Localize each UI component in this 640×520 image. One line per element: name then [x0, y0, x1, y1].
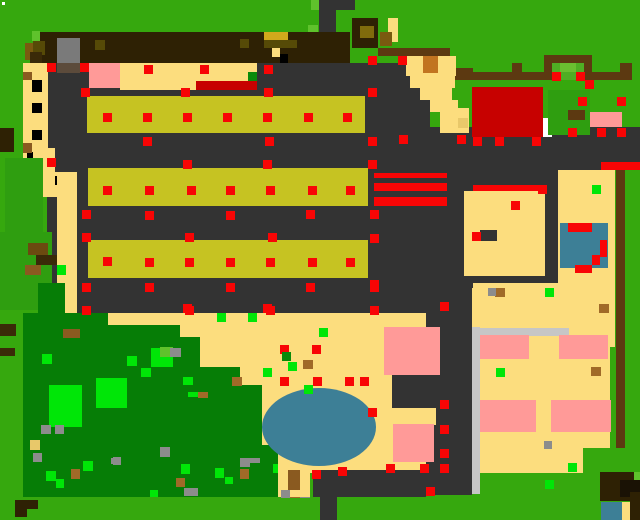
- east-pond: [600, 257, 608, 267]
- item-red: [103, 257, 112, 266]
- item-red: [312, 345, 321, 354]
- item-red: [145, 258, 154, 267]
- branch: [36, 255, 57, 265]
- cliff-wood: [23, 72, 32, 80]
- east-fence-line: [616, 170, 625, 448]
- pink-bed: [551, 400, 611, 432]
- red-carpet: [196, 81, 257, 90]
- item-red: [568, 128, 577, 137]
- leaf-patch: [57, 265, 66, 275]
- item-red: [370, 280, 379, 289]
- pen-bush-light: [560, 63, 576, 72]
- item-red: [313, 377, 322, 386]
- item-red: [473, 137, 482, 146]
- tree-deco: [360, 26, 374, 38]
- item-red: [183, 160, 192, 169]
- item-red: [440, 464, 449, 473]
- log: [71, 469, 80, 479]
- item-green: [288, 362, 297, 371]
- item-red: [143, 137, 152, 146]
- tree-trunk: [288, 470, 300, 490]
- log-west-edge: [0, 324, 16, 336]
- item-red: [399, 135, 408, 144]
- fence-rail: [378, 48, 450, 56]
- item-red: [370, 306, 379, 315]
- item-red: [47, 158, 56, 167]
- item-red: [265, 137, 274, 146]
- item-red: [103, 113, 112, 122]
- light-grass: [308, 25, 318, 32]
- item-green: [545, 480, 554, 489]
- striped-shed-stripe: [374, 183, 447, 191]
- item-red: [263, 113, 272, 122]
- log: [198, 392, 208, 398]
- item-red: [82, 283, 91, 292]
- item-red: [576, 72, 585, 81]
- item-red: [345, 377, 354, 386]
- lime-patch: [183, 377, 193, 385]
- item-red: [226, 258, 235, 267]
- lime-clearing: [49, 385, 82, 427]
- pink-bed: [559, 335, 608, 359]
- item-red: [532, 137, 541, 146]
- sand-spot: [30, 440, 40, 450]
- dark-plot: [392, 375, 440, 408]
- item-red: [226, 186, 235, 195]
- cliff-post: [32, 130, 42, 140]
- stone: [113, 457, 121, 465]
- log: [176, 478, 185, 487]
- lime-patch: [127, 356, 137, 366]
- south-log-l: [15, 509, 27, 517]
- item-red: [223, 113, 232, 122]
- item-green-dark: [282, 352, 291, 361]
- item-red: [338, 467, 347, 476]
- item-red: [266, 186, 275, 195]
- item-red: [103, 186, 112, 195]
- fence-rail: [455, 72, 548, 80]
- corner-hut: [630, 492, 640, 520]
- item-red: [368, 408, 377, 417]
- sand-slope: [430, 100, 458, 112]
- item-red: [145, 211, 154, 220]
- light-grass: [32, 31, 40, 41]
- sand-sliver: [472, 288, 480, 327]
- item-red: [264, 65, 273, 74]
- fence-post: [512, 63, 522, 72]
- item-red: [346, 258, 355, 267]
- lime-patch: [46, 471, 56, 481]
- item-red: [183, 304, 192, 313]
- item-red: [226, 283, 235, 292]
- gray-path-vertical: [472, 327, 480, 494]
- item-red: [266, 258, 275, 267]
- stone: [281, 490, 290, 498]
- item-red: [511, 201, 520, 210]
- farmhouse-wall: [40, 32, 350, 64]
- item-red: [306, 210, 315, 219]
- item-red: [370, 234, 379, 243]
- farmhouse-door: [57, 38, 80, 64]
- sand-slope: [410, 76, 455, 88]
- lime-patch: [42, 354, 52, 364]
- cliff-wood: [23, 143, 32, 153]
- item-red: [578, 97, 587, 106]
- item-red: [308, 186, 317, 195]
- wall-deco: [264, 40, 297, 48]
- item-green: [568, 463, 577, 472]
- item-red: [47, 63, 56, 72]
- item-green-dark: [248, 72, 257, 81]
- log: [568, 110, 585, 120]
- item-red: [346, 186, 355, 195]
- item-red: [312, 470, 321, 479]
- pond-ring: [592, 255, 600, 265]
- south-log-l: [15, 500, 38, 509]
- stone: [41, 425, 51, 434]
- stone: [33, 453, 42, 462]
- item-red: [457, 135, 466, 144]
- item-green: [592, 185, 601, 194]
- item-red: [200, 65, 209, 74]
- farmhouse-wall: [336, 32, 350, 64]
- item-red: [81, 88, 90, 97]
- light-grass: [634, 472, 640, 480]
- pond-ring: [568, 223, 592, 232]
- tree-canopy-west: [5, 158, 43, 235]
- item-red: [145, 186, 154, 195]
- lime-clearing: [96, 378, 127, 408]
- item-red: [263, 160, 272, 169]
- item-red: [368, 88, 377, 97]
- forest-southwest: [240, 385, 262, 497]
- pond-ring: [600, 240, 607, 257]
- pond-ring: [575, 265, 592, 273]
- item-red: [263, 304, 272, 313]
- item-wood: [495, 288, 505, 297]
- item-stone: [544, 441, 552, 449]
- item-red: [426, 487, 435, 496]
- item-red: [268, 233, 277, 242]
- item-red: [368, 160, 377, 169]
- item-wood: [591, 367, 601, 376]
- pen-fence: [544, 55, 592, 63]
- lime-patch: [150, 490, 158, 497]
- wall-gold-trim: [264, 32, 288, 40]
- item-red: [398, 56, 407, 65]
- item-red: [264, 88, 273, 97]
- item-green: [263, 368, 272, 377]
- fence-corner: [620, 63, 632, 80]
- lime-patch: [56, 479, 64, 488]
- item-red: [370, 210, 379, 219]
- stone: [184, 488, 198, 496]
- pink-patch: [590, 112, 622, 127]
- log: [232, 377, 242, 386]
- striped-shed-stripe: [374, 197, 447, 206]
- item-green: [248, 313, 257, 322]
- item-red: [386, 464, 395, 473]
- item-red: [181, 88, 190, 97]
- item-red: [538, 185, 547, 194]
- item-red: [440, 425, 449, 434]
- lime-patch: [225, 477, 233, 484]
- item-stone: [488, 288, 496, 296]
- cabin-furniture: [480, 230, 497, 241]
- item-wood: [303, 360, 313, 369]
- item-red: [82, 233, 91, 242]
- pink-bed: [384, 327, 440, 375]
- west-edge-notch: [0, 128, 14, 152]
- south-road-band: [313, 470, 426, 497]
- item-green: [304, 385, 313, 394]
- item-red: [80, 63, 89, 72]
- item-red: [597, 128, 606, 137]
- wall-window: [272, 48, 280, 57]
- branch: [28, 243, 48, 255]
- item-red: [183, 113, 192, 122]
- item-red: [420, 464, 429, 473]
- stone: [55, 425, 64, 434]
- stone: [250, 458, 260, 463]
- forest-edge: [38, 283, 65, 313]
- item-red: [82, 210, 91, 219]
- item-red: [304, 113, 313, 122]
- south-road-exit: [320, 497, 337, 520]
- item-red: [343, 113, 352, 122]
- item-red: [143, 113, 152, 122]
- pink-bed: [393, 424, 434, 462]
- striped-shed-stripe: [374, 173, 447, 178]
- stone: [170, 348, 181, 357]
- item-red: [617, 128, 626, 137]
- item-red: [495, 137, 504, 146]
- lime-patch: [181, 464, 190, 474]
- item-red: [552, 72, 561, 81]
- branch: [25, 265, 41, 275]
- item-red: [440, 449, 449, 458]
- striped-shed-stripe: [473, 185, 544, 191]
- item-red: [185, 258, 194, 267]
- east-red-line: [601, 162, 640, 170]
- farm-map[interactable]: [0, 0, 640, 520]
- wall-deco: [95, 40, 105, 50]
- item-red: [226, 211, 235, 220]
- log: [63, 329, 80, 338]
- item-red: [82, 306, 91, 315]
- item-red: [185, 233, 194, 242]
- stone: [160, 447, 170, 457]
- stone: [240, 458, 250, 467]
- sand-spot: [458, 118, 468, 128]
- pink-bed: [480, 335, 529, 359]
- doormat: [57, 63, 80, 73]
- item-red: [368, 137, 377, 146]
- lime-patch: [141, 368, 151, 377]
- tree-trunk: [30, 52, 42, 63]
- item-red: [440, 302, 449, 311]
- item-red: [280, 377, 289, 386]
- lime-patch: [188, 392, 198, 397]
- item-red: [368, 56, 377, 65]
- corner-pond: [601, 502, 622, 520]
- item-green: [496, 368, 505, 377]
- cliff-post: [32, 103, 42, 113]
- cliff-post: [32, 80, 42, 92]
- item-green: [319, 328, 328, 337]
- item-green: [217, 313, 226, 322]
- item-green: [545, 288, 554, 297]
- road-top: [336, 0, 355, 10]
- lime-patch: [215, 468, 224, 478]
- item-red: [585, 80, 594, 89]
- item-red: [187, 186, 196, 195]
- lime-patch: [83, 461, 93, 471]
- log-west-edge: [0, 348, 15, 356]
- white-dot: [2, 2, 5, 5]
- item-red: [306, 283, 315, 292]
- pink-bed: [480, 400, 536, 432]
- item-wood: [599, 304, 609, 313]
- item-red: [440, 400, 449, 409]
- item-red: [145, 283, 154, 292]
- light-grass: [311, 0, 319, 10]
- sand-sliver: [622, 502, 630, 520]
- item-red: [144, 65, 153, 74]
- item-red: [472, 232, 481, 241]
- red-barn: [472, 87, 543, 137]
- sand-slope: [420, 88, 452, 100]
- item-red: [308, 258, 317, 267]
- wall-deco: [240, 39, 249, 48]
- log: [240, 469, 249, 479]
- item-red: [360, 377, 369, 386]
- item-red: [617, 97, 626, 106]
- tree-trunk: [380, 32, 392, 46]
- pink-bed-north: [89, 63, 120, 88]
- main-pond: [262, 388, 376, 466]
- crate: [423, 56, 438, 73]
